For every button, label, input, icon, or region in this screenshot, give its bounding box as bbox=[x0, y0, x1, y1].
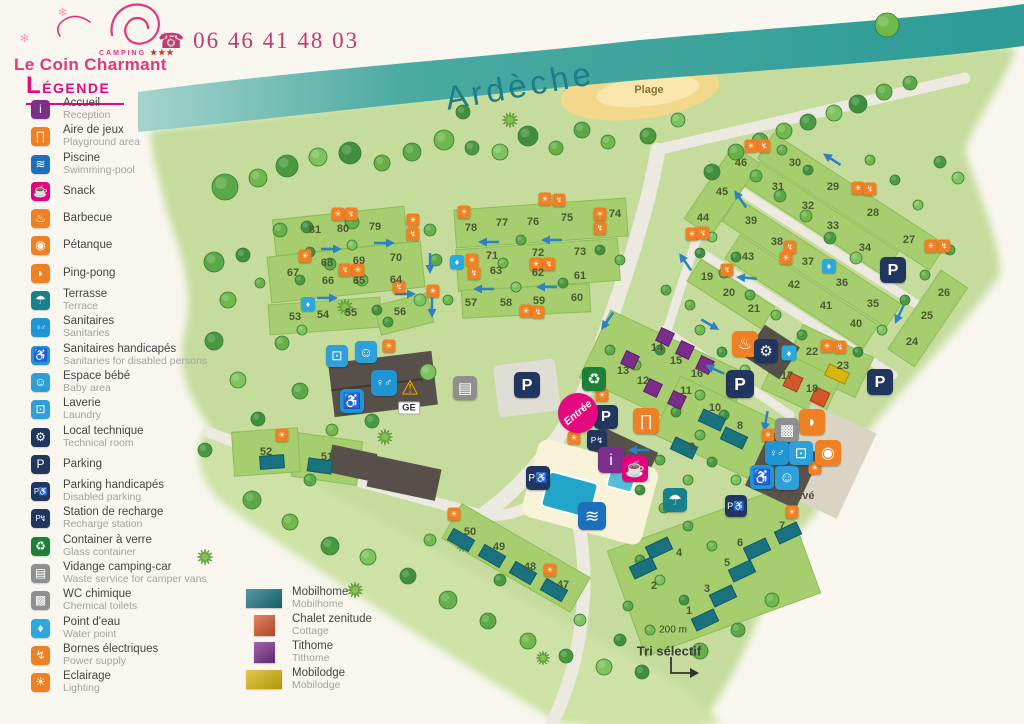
legend-item-ping-pong: ◗Ping-pong bbox=[31, 264, 207, 283]
map-icon-eclairage: ☀ bbox=[427, 285, 440, 298]
map-icon-eclairage: ☀ bbox=[448, 508, 461, 521]
map-icon-bornes: ↯ bbox=[345, 208, 358, 221]
pitch-number: 33 bbox=[827, 220, 839, 232]
map-icon-bornes: ↯ bbox=[758, 140, 771, 153]
pitch-number: 25 bbox=[921, 310, 933, 322]
map-icon-parking: P bbox=[726, 370, 754, 398]
pitch-number: 79 bbox=[369, 221, 381, 233]
map-icon-eclairage: ☀ bbox=[821, 340, 834, 353]
legend-item-snack: ☕Snack bbox=[31, 182, 207, 201]
map-icon-sanitaires: ♀♂ bbox=[371, 370, 397, 396]
pitch-number: 43 bbox=[742, 251, 754, 263]
legend-label-fr: Ping-pong bbox=[63, 268, 115, 279]
map-icon-technique: ⚙ bbox=[754, 339, 778, 363]
legend-label-fr: Bornes électriques bbox=[63, 644, 158, 655]
map-icon-sanitaires: ♀♂ bbox=[765, 441, 789, 465]
legend-item-text: TerrasseTerrace bbox=[63, 289, 107, 312]
map-icon-aire-jeux: ∏ bbox=[633, 408, 659, 434]
map-icon-sanitaires-h: ♿ bbox=[340, 389, 364, 413]
pitch-number: 37 bbox=[802, 256, 814, 268]
legend-label-fr: Snack bbox=[63, 186, 95, 197]
pitch-number: 34 bbox=[859, 242, 871, 254]
pitch-number: 64 bbox=[390, 274, 402, 286]
pitch-number: 22 bbox=[806, 346, 818, 358]
legend-item-text: Barbecue bbox=[63, 213, 112, 224]
pitch-number: 51 bbox=[321, 451, 333, 463]
sorting-label: Tri sélectif bbox=[637, 644, 701, 659]
pitch-number: 39 bbox=[745, 215, 757, 227]
pitch-number: 38 bbox=[771, 236, 783, 248]
legend-label-fr: Accueil bbox=[63, 98, 110, 109]
pitch-number: 29 bbox=[827, 181, 839, 193]
legend-label-fr: Laverie bbox=[63, 398, 101, 409]
legend-label-fr: Parking handicapés bbox=[63, 480, 164, 491]
pitch-number: 77 bbox=[496, 217, 508, 229]
map-icon-eclairage: ☀ bbox=[745, 140, 758, 153]
pitch-number: 42 bbox=[788, 279, 800, 291]
legend-label-en: Sanitaries bbox=[63, 328, 114, 339]
legend-label-fr: Local technique bbox=[63, 426, 144, 437]
map-icon-container: ♻ bbox=[582, 367, 606, 391]
parking-icon: P bbox=[31, 455, 50, 474]
map-icon-accueil: i bbox=[598, 447, 624, 473]
map-icon-eclairage: ☀ bbox=[544, 564, 557, 577]
pitch-number: 2 bbox=[651, 580, 657, 592]
chalet-swatch bbox=[254, 615, 275, 636]
map-icon-point-eau: ♦ bbox=[822, 259, 836, 273]
map-icon-bornes: ↯ bbox=[594, 222, 607, 235]
legend-label-fr: Vidange camping-car bbox=[63, 562, 207, 573]
legend-item-piscine: ≋PiscineSwimming-pool bbox=[31, 155, 207, 174]
legend-label-fr: Piscine bbox=[63, 153, 135, 164]
sanitaires-icon: ♀♂ bbox=[31, 318, 50, 337]
tithome-swatch bbox=[254, 642, 275, 663]
map-icon-piscine: ≋ bbox=[578, 502, 606, 530]
eclairage-icon: ☀ bbox=[31, 673, 50, 692]
pitch-number: 36 bbox=[836, 277, 848, 289]
pitch-number: 74 bbox=[609, 208, 621, 220]
pitch-number: 23 bbox=[837, 360, 849, 372]
map-icon-eclairage: ☀ bbox=[407, 214, 420, 227]
phone: ☎ 06 46 41 48 03 bbox=[158, 28, 359, 54]
legend-item-text: PiscineSwimming-pool bbox=[63, 153, 135, 176]
aire-jeux-icon: ∏ bbox=[31, 127, 50, 146]
accommodation-item-mobilhome: MobilhomeMobilhome bbox=[246, 588, 372, 608]
logo-flower-icon: ✻ bbox=[58, 6, 67, 19]
pitch-number: 21 bbox=[748, 303, 760, 315]
legend-item-container: ♻Container à verreGlass container bbox=[31, 537, 207, 556]
map-icon-eclairage: ☀ bbox=[276, 429, 289, 442]
legend-item-laverie: ⊡LaverieLaundry bbox=[31, 400, 207, 419]
pitch-number: 69 bbox=[353, 255, 365, 267]
map-icon-parking: P bbox=[880, 257, 906, 283]
map-icon-espace-bebe: ☺ bbox=[775, 466, 799, 490]
pitch-number: 80 bbox=[337, 223, 349, 235]
logo-flower-icon: ✻ bbox=[20, 32, 29, 45]
pitch-number: 52 bbox=[260, 446, 272, 458]
legend-label-en: Recharge station bbox=[63, 519, 163, 530]
beach-label: Plage bbox=[634, 84, 663, 96]
pitch-number: 6 bbox=[737, 537, 743, 549]
map-icon-eclairage: ☀ bbox=[594, 208, 607, 221]
pitch-number: 41 bbox=[820, 300, 832, 312]
legend-item-text: LaverieLaundry bbox=[63, 398, 101, 421]
pitch-number: 26 bbox=[938, 287, 950, 299]
legend-item-technique: ⚙Local techniqueTechnical room bbox=[31, 428, 207, 447]
map-icon-terrasse: ☂ bbox=[663, 488, 687, 512]
legend-item-text: Pétanque bbox=[63, 240, 112, 251]
private-label: Privé bbox=[788, 490, 815, 502]
pitch-number: 53 bbox=[289, 311, 301, 323]
legend-item-bornes: ↯Bornes électriquesPower supply bbox=[31, 646, 207, 665]
pitch-number: 73 bbox=[574, 246, 586, 258]
map-icon-point-eau: ♦ bbox=[301, 297, 315, 311]
accueil-icon: i bbox=[31, 100, 50, 119]
pitch-number: 75 bbox=[561, 212, 573, 224]
legend-label-fr: Container à verre bbox=[63, 535, 152, 546]
accommodation-label-en: Cottage bbox=[292, 626, 372, 637]
pitch-number: 19 bbox=[701, 271, 713, 283]
map-icon-bornes: ↯ bbox=[864, 183, 877, 196]
technique-icon: ⚙ bbox=[31, 428, 50, 447]
pitch-number: 78 bbox=[465, 222, 477, 234]
legend-item-text: Espace bébéBaby area bbox=[63, 371, 130, 394]
pitch-number: 35 bbox=[867, 298, 879, 310]
laverie-icon: ⊡ bbox=[31, 400, 50, 419]
legend-label-en: Swimming-pool bbox=[63, 165, 135, 176]
legend-label-en: Baby area bbox=[63, 383, 130, 394]
piscine-icon: ≋ bbox=[31, 155, 50, 174]
legend-item-parking: PParking bbox=[31, 455, 207, 474]
map-icon-bornes: ↯ bbox=[938, 240, 951, 253]
pitch-number: 81 bbox=[309, 224, 321, 236]
accommodation-label-fr: Chalet zenitude bbox=[292, 614, 372, 625]
sorting-distance-label: 200 m bbox=[659, 625, 687, 636]
legend-label-fr: Eclairage bbox=[63, 671, 111, 682]
map-icon-eclairage: ☀ bbox=[458, 206, 471, 219]
legend-label-en: Terrace bbox=[63, 301, 107, 312]
legend-label-fr: Sanitaires handicapés bbox=[63, 344, 207, 355]
pitch-number: 5 bbox=[724, 557, 730, 569]
map-icon-laverie: ⊡ bbox=[326, 345, 348, 367]
bornes-icon: ↯ bbox=[31, 646, 50, 665]
legend-label-en: Disabled parking bbox=[63, 492, 164, 503]
snack-icon: ☕ bbox=[31, 182, 50, 201]
wc-chimique-icon: ▩ bbox=[31, 591, 50, 610]
recharge-icon: P↯ bbox=[31, 509, 50, 528]
pitch-number: 16 bbox=[691, 368, 703, 380]
accommodation-text: MobilhomeMobilhome bbox=[292, 587, 348, 610]
pitch-number: 24 bbox=[906, 336, 918, 348]
phone-number: 06 46 41 48 03 bbox=[193, 28, 359, 54]
legend-label-fr: Pétanque bbox=[63, 240, 112, 251]
legend-item-accueil: iAccueilReception bbox=[31, 100, 207, 119]
accommodation-text: Chalet zenitudeCottage bbox=[292, 614, 372, 637]
legend-label-fr: Espace bébé bbox=[63, 371, 130, 382]
legend-label-en: Power supply bbox=[63, 656, 158, 667]
warning-icon: ⚠ bbox=[401, 376, 419, 401]
accommodation-item-tithome: TithomeTithome bbox=[246, 642, 372, 662]
map-icon-eclairage: ☀ bbox=[466, 254, 479, 267]
pitch-number: 18 bbox=[806, 383, 818, 395]
legend-item-sanitaires: ♀♂SanitairesSanitaries bbox=[31, 318, 207, 337]
map-icon-petanque: ◉ bbox=[815, 440, 841, 466]
pitch-number: 70 bbox=[390, 252, 402, 264]
phone-icon: ☎ bbox=[158, 29, 184, 54]
legend-item-text: EclairageLighting bbox=[63, 671, 111, 694]
pitch-number: 44 bbox=[697, 212, 709, 224]
pitch-number: 4 bbox=[676, 547, 682, 559]
legend-item-recharge: P↯Station de rechargeRecharge station bbox=[31, 509, 207, 528]
legend-item-text: Snack bbox=[63, 186, 95, 197]
legend-item-parking-h: P♿Parking handicapésDisabled parking bbox=[31, 482, 207, 501]
map-icon-eclairage: ☀ bbox=[780, 252, 793, 265]
pitch-number: 40 bbox=[850, 318, 862, 330]
pitch-number: 47 bbox=[557, 579, 569, 591]
pitch-number: 72 bbox=[532, 247, 544, 259]
pitch-number: 7 bbox=[779, 520, 785, 532]
legend-item-wc-chimique: ▩WC chimiqueChemical toilets bbox=[31, 591, 207, 610]
pitch-number: 59 bbox=[533, 295, 545, 307]
pitch-number: 54 bbox=[317, 309, 329, 321]
map-icon-eclairage: ☀ bbox=[299, 250, 312, 263]
pitch-number: 10 bbox=[709, 402, 721, 414]
legend-item-text: Aire de jeuxPlayground area bbox=[63, 125, 140, 148]
pitch-number: 48 bbox=[524, 561, 536, 573]
point-eau-icon: ♦ bbox=[31, 619, 50, 638]
accommodation-label-en: Tithome bbox=[292, 653, 333, 664]
pitch-number: 66 bbox=[322, 275, 334, 287]
pitch-number: 65 bbox=[353, 275, 365, 287]
legend-item-text: Container à verreGlass container bbox=[63, 535, 152, 558]
map-icon-snack: ☕ bbox=[622, 456, 648, 482]
accommodation-text: MobilodgeMobilodge bbox=[292, 668, 345, 691]
pitch-number: 62 bbox=[532, 267, 544, 279]
pitch-number: 9 bbox=[689, 441, 695, 453]
espace-bebe-icon: ☺ bbox=[31, 373, 50, 392]
legend-label-en: Reception bbox=[63, 110, 110, 121]
legend-item-sanitaires-h: ♿Sanitaires handicapésSanitaries for dis… bbox=[31, 346, 207, 365]
map-icon-bornes: ↯ bbox=[407, 228, 420, 241]
pitch-number: 55 bbox=[345, 307, 357, 319]
legend-item-point-eau: ♦Point d'eauWater point bbox=[31, 619, 207, 638]
map-icon-laverie: ⊡ bbox=[789, 441, 813, 465]
map-icon-wc-chimique: ▩ bbox=[775, 418, 799, 442]
pitch-number: 56 bbox=[394, 306, 406, 318]
map-icon-bornes: ↯ bbox=[553, 194, 566, 207]
legend-label-fr: Aire de jeux bbox=[63, 125, 140, 136]
legend-label-fr: WC chimique bbox=[63, 589, 137, 600]
legend-item-petanque: ◉Pétanque bbox=[31, 236, 207, 255]
container-icon: ♻ bbox=[31, 537, 50, 556]
legend-item-text: WC chimiqueChemical toilets bbox=[63, 589, 137, 612]
map-icon-bornes: ↯ bbox=[834, 341, 847, 354]
terrasse-icon: ☂ bbox=[31, 291, 50, 310]
map-icon-bornes: ↯ bbox=[697, 227, 710, 240]
legend-item-espace-bebe: ☺Espace bébéBaby area bbox=[31, 373, 207, 392]
accommodation-legend: MobilhomeMobilhomeChalet zenitudeCottage… bbox=[246, 588, 372, 689]
map-icon-eclairage: ☀ bbox=[925, 240, 938, 253]
map-icon-sanitaires-h: ♿ bbox=[750, 465, 774, 489]
pitch-number: 30 bbox=[789, 157, 801, 169]
pitch-number: 1 bbox=[686, 605, 692, 617]
pitch-number: 31 bbox=[772, 181, 784, 193]
pitch-number: 50 bbox=[464, 526, 476, 538]
legend-label-en: Sanitaries for disabled persons bbox=[63, 356, 207, 367]
pitch-number: 45 bbox=[716, 186, 728, 198]
legend-label-fr: Terrasse bbox=[63, 289, 107, 300]
accommodation-label-en: Mobilhome bbox=[292, 599, 348, 610]
legend-item-text: Parking bbox=[63, 459, 102, 470]
legend-label-en: Water point bbox=[63, 629, 120, 640]
barbecue-icon: ♨ bbox=[31, 209, 50, 228]
petanque-icon: ◉ bbox=[31, 236, 50, 255]
pitch-number: 15 bbox=[670, 355, 682, 367]
map-icon-bornes: ↯ bbox=[721, 264, 734, 277]
pitch-number: 32 bbox=[802, 200, 814, 212]
legend-items: iAccueilReception∏Aire de jeuxPlayground… bbox=[31, 100, 207, 692]
map-icon-point-eau: ♦ bbox=[782, 346, 797, 361]
pitch-number: 71 bbox=[486, 250, 498, 262]
sanitaires-h-icon: ♿ bbox=[31, 346, 50, 365]
mobilodge-swatch bbox=[246, 670, 282, 689]
pitch-number: 63 bbox=[490, 265, 502, 277]
ping-pong-icon: ◗ bbox=[31, 264, 50, 283]
accommodation-label-fr: Tithome bbox=[292, 641, 333, 652]
legend-item-text: Bornes électriquesPower supply bbox=[63, 644, 158, 667]
legend-label-en: Playground area bbox=[63, 137, 140, 148]
map-icon-eclairage: ☀ bbox=[786, 506, 799, 519]
legend-label-en: Lighting bbox=[63, 683, 111, 694]
legend-label-en: Glass container bbox=[63, 547, 152, 558]
river-label: Ardèche bbox=[442, 54, 597, 118]
pitch-number: 67 bbox=[287, 267, 299, 279]
pitch-number: 11 bbox=[680, 385, 692, 397]
pitch-number: 20 bbox=[723, 287, 735, 299]
map-icon-ping-pong: ◗ bbox=[799, 409, 825, 435]
pitch-number: 12 bbox=[637, 375, 649, 387]
pitch-number: 49 bbox=[493, 541, 505, 553]
pitch-number: 58 bbox=[500, 297, 512, 309]
pitch-number: 46 bbox=[735, 157, 747, 169]
legend-item-eclairage: ☀EclairageLighting bbox=[31, 673, 207, 692]
legend-item-text: Sanitaires handicapésSanitaries for disa… bbox=[63, 344, 207, 367]
map-icon-bornes: ↯ bbox=[468, 267, 481, 280]
legend-item-text: SanitairesSanitaries bbox=[63, 316, 114, 339]
legend-label-fr: Barbecue bbox=[63, 213, 112, 224]
pitch-number: 3 bbox=[704, 583, 710, 595]
map-icon-bornes: ↯ bbox=[532, 306, 545, 319]
map-icon-parking-h: P♿ bbox=[526, 466, 550, 490]
parking-h-icon: P♿ bbox=[31, 482, 50, 501]
legend-item-text: Ping-pong bbox=[63, 268, 115, 279]
pitch-number: 17 bbox=[781, 370, 793, 382]
generator-label: GE bbox=[398, 402, 420, 415]
map-icon-eclairage: ☀ bbox=[762, 429, 775, 442]
accommodation-label-fr: Mobilodge bbox=[292, 668, 345, 679]
pitch-number: 8 bbox=[737, 420, 743, 432]
campsite-map-page: Ardèche Plage Privé GE 200 m Tri sélecti… bbox=[0, 0, 1024, 724]
pitch-number: 60 bbox=[571, 292, 583, 304]
accommodation-item-chalet: Chalet zenitudeCottage bbox=[246, 615, 372, 635]
legend-label-fr: Sanitaires bbox=[63, 316, 114, 327]
pitch-number: 57 bbox=[465, 297, 477, 309]
map-icon-espace-bebe: ☺ bbox=[355, 341, 377, 363]
map-icon-eclairage: ☀ bbox=[539, 193, 552, 206]
legend-item-barbecue: ♨Barbecue bbox=[31, 209, 207, 228]
legend-item-text: Vidange camping-carWaste service for cam… bbox=[63, 562, 207, 585]
map-icon-parking: P bbox=[867, 369, 893, 395]
legend-item-text: Local techniqueTechnical room bbox=[63, 426, 144, 449]
legend-item-vidange: ▤Vidange camping-carWaste service for ca… bbox=[31, 564, 207, 583]
pitch-number: 13 bbox=[617, 365, 629, 377]
legend-label-fr: Parking bbox=[63, 459, 102, 470]
map-icon-eclairage: ☀ bbox=[332, 208, 345, 221]
vidange-icon: ▤ bbox=[31, 564, 50, 583]
map-icon-bornes: ↯ bbox=[339, 264, 352, 277]
map-icon-eclairage: ☀ bbox=[383, 340, 396, 353]
accommodation-text: TithomeTithome bbox=[292, 641, 333, 664]
accommodation-label-en: Mobilodge bbox=[292, 680, 345, 691]
pitch-number: 61 bbox=[574, 270, 586, 282]
accommodation-label-fr: Mobilhome bbox=[292, 587, 348, 598]
legend-item-text: Point d'eauWater point bbox=[63, 617, 120, 640]
pitch-number: 27 bbox=[903, 234, 915, 246]
legend-item-text: AccueilReception bbox=[63, 98, 110, 121]
legend-item-text: Parking handicapésDisabled parking bbox=[63, 480, 164, 503]
legend-item-aire-jeux: ∏Aire de jeuxPlayground area bbox=[31, 127, 207, 146]
map-icon-point-eau: ♦ bbox=[450, 255, 464, 269]
legend-label-en: Technical room bbox=[63, 438, 144, 449]
legend-label-en: Chemical toilets bbox=[63, 601, 137, 612]
mobilhome-swatch bbox=[246, 589, 282, 608]
map-icon-vidange: ▤ bbox=[453, 376, 477, 400]
pitch-number: 76 bbox=[527, 216, 539, 228]
map-icon-parking-h: P♿ bbox=[725, 495, 747, 517]
pitch-number: 28 bbox=[867, 207, 879, 219]
legend-item-terrasse: ☂TerrasseTerrace bbox=[31, 291, 207, 310]
pitch-number: 68 bbox=[321, 257, 333, 269]
legend-label-en: Waste service for camper vans bbox=[63, 574, 207, 585]
map-icon-bornes: ↯ bbox=[543, 258, 556, 271]
legend-item-text: Station de rechargeRecharge station bbox=[63, 507, 163, 530]
legend-label-fr: Station de recharge bbox=[63, 507, 163, 518]
map-icon-parking: P bbox=[514, 372, 540, 398]
accommodation-item-mobilodge: MobilodgeMobilodge bbox=[246, 669, 372, 689]
legend-label-en: Laundry bbox=[63, 410, 101, 421]
legend-label-fr: Point d'eau bbox=[63, 617, 120, 628]
pitch-number: 14 bbox=[651, 342, 663, 354]
